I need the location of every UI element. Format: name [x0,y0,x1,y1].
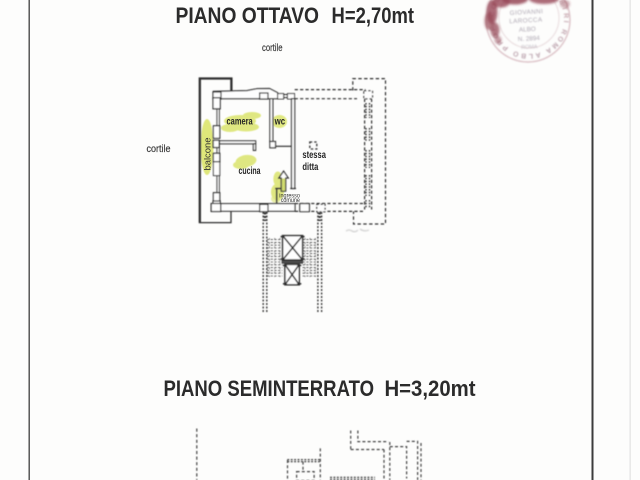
svg-text:ALBO: ALBO [519,26,536,34]
svg-text:stessa: stessa [302,150,326,161]
svg-text:wc: wc [274,117,286,128]
svg-text:PIANO OTTAVO: PIANO OTTAVO [176,3,320,28]
svg-text:cucina: cucina [239,166,261,177]
svg-text:H=2,70mt: H=2,70mt [332,3,415,28]
svg-text:ditta: ditta [302,162,318,173]
svg-text:comune: comune [281,197,301,204]
svg-text:PIANO SEMINTERRATO: PIANO SEMINTERRATO [164,376,375,401]
svg-text:cortile: cortile [262,43,283,54]
svg-text:cortile: cortile [147,144,171,155]
svg-text:ROMA: ROMA [521,44,538,51]
svg-text:camera: camera [227,116,254,127]
svg-text:H=3,20mt: H=3,20mt [385,376,476,401]
svg-text:N. 2894: N. 2894 [518,35,541,43]
svg-text:balcone: balcone [202,138,212,171]
